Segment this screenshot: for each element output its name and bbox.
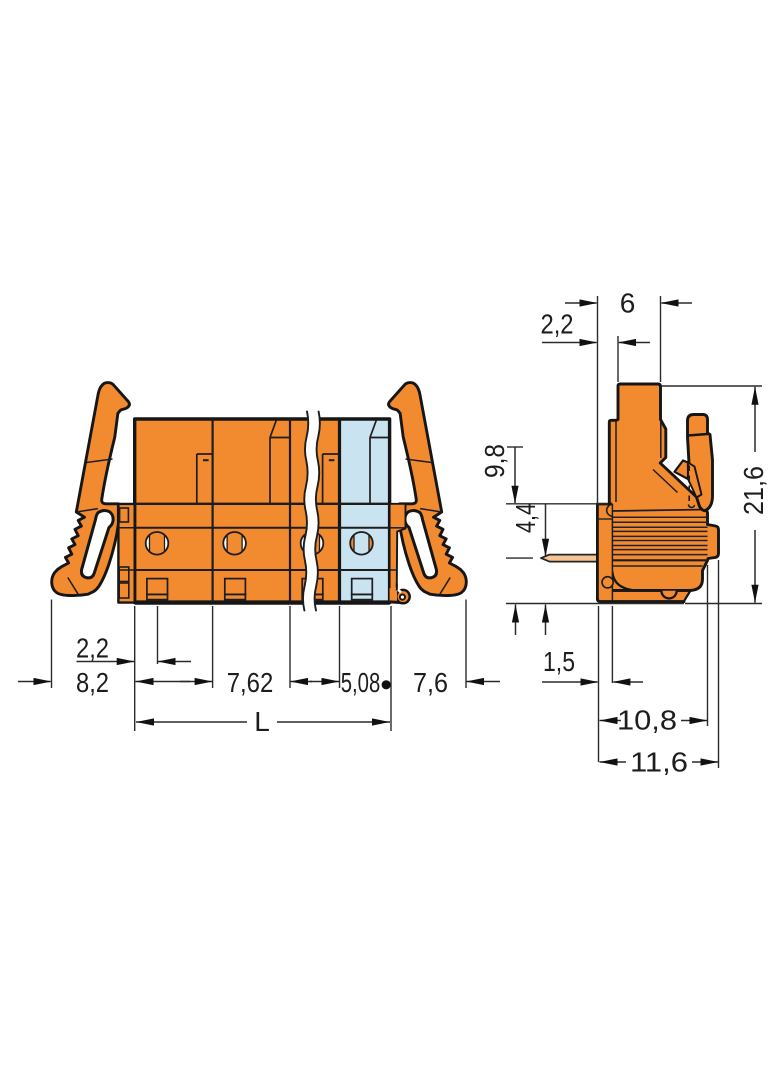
svg-text:L: L [254,706,270,737]
svg-text:6: 6 [620,288,636,319]
svg-text:1,5: 1,5 [543,646,575,677]
svg-text:21,6: 21,6 [738,466,769,515]
svg-text:2,2: 2,2 [76,633,109,664]
svg-text:7,6: 7,6 [413,667,448,698]
svg-text:11,6: 11,6 [630,747,688,778]
svg-text:5,08: 5,08 [341,667,381,698]
svg-text:10,8: 10,8 [617,705,677,736]
svg-text:7,62: 7,62 [227,667,274,698]
svg-text:2,2: 2,2 [541,309,574,340]
svg-text:4,4: 4,4 [510,503,541,533]
svg-text:8,2: 8,2 [76,667,109,698]
svg-text:9,8: 9,8 [479,444,510,478]
